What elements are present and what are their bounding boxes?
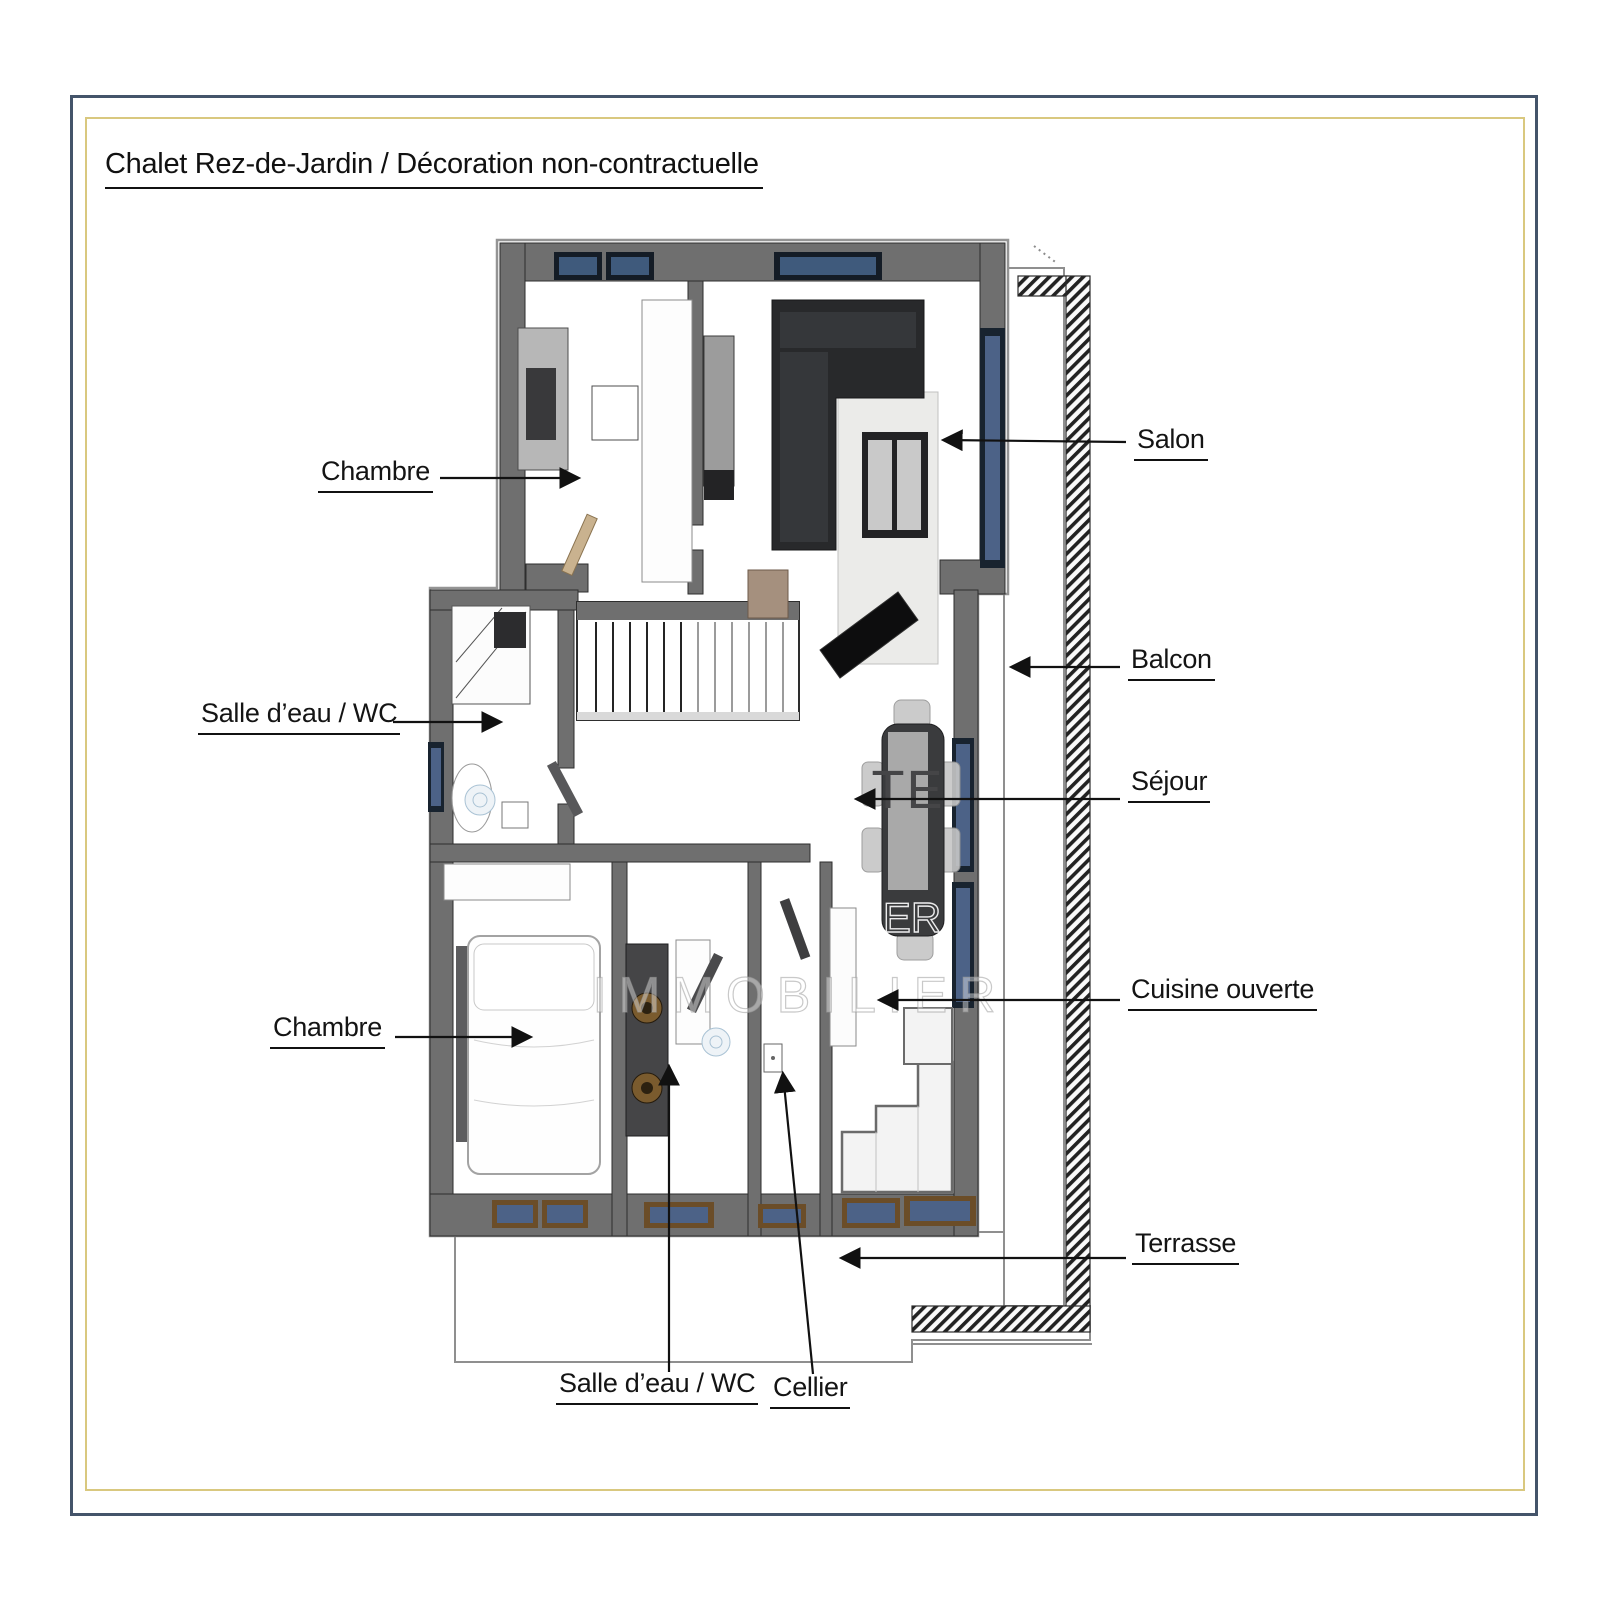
watermark-er: ER bbox=[883, 894, 941, 941]
wc-unit bbox=[502, 802, 528, 828]
label-chambre-top: Chambre bbox=[318, 456, 433, 493]
floor-plan-page: Chalet Rez-de-Jardin / Décoration non-co… bbox=[0, 0, 1600, 1600]
terrace-area bbox=[455, 1232, 1092, 1362]
label-salle-eau-bottom: Salle d’eau / WC bbox=[556, 1368, 758, 1405]
balcony-area bbox=[1004, 246, 1064, 1306]
watermark-te: TE bbox=[871, 760, 944, 820]
label-cuisine: Cuisine ouverte bbox=[1128, 974, 1317, 1011]
shower-drain bbox=[702, 1028, 730, 1056]
tall-cabinet bbox=[704, 336, 734, 486]
label-cellier: Cellier bbox=[770, 1372, 850, 1409]
watermark-brand: IMMOBILIER bbox=[593, 967, 1007, 1023]
built-in-closet bbox=[444, 864, 570, 900]
label-balcon: Balcon bbox=[1128, 644, 1215, 681]
label-chambre-bottom: Chambre bbox=[270, 1012, 385, 1049]
pillow bbox=[474, 944, 594, 1010]
armchair bbox=[748, 570, 788, 618]
staircase bbox=[577, 602, 799, 720]
label-sejour: Séjour bbox=[1128, 766, 1210, 803]
label-terrasse: Terrasse bbox=[1132, 1228, 1239, 1265]
wardrobe bbox=[642, 300, 692, 582]
side-table bbox=[592, 386, 638, 440]
floor-plan: TE ER IMMOBILIER bbox=[0, 0, 1600, 1600]
label-salon: Salon bbox=[1134, 424, 1208, 461]
label-salle-eau-left: Salle d’eau / WC bbox=[198, 698, 400, 735]
